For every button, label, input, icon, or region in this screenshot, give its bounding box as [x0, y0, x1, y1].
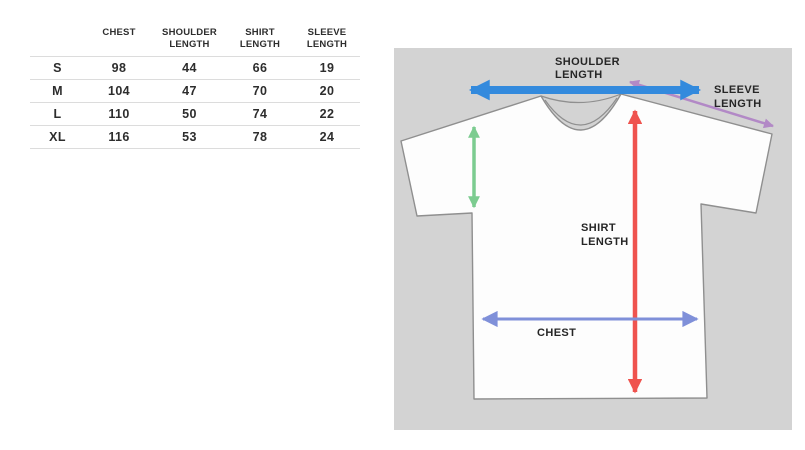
cell-sleeve-length: 22: [294, 103, 360, 126]
header-size: [30, 17, 85, 57]
size-row-s: S 98 44 66 19: [30, 57, 360, 80]
cell-sleeve-length: 20: [294, 80, 360, 103]
size-row-m: M 104 47 70 20: [30, 80, 360, 103]
size-row-l: L 110 50 74 22: [30, 103, 360, 126]
header-shirt-length: SHIRT LENGTH: [226, 17, 294, 57]
cell-chest: 110: [85, 103, 153, 126]
cell-shoulder-length: 50: [153, 103, 226, 126]
cell-size: XL: [30, 126, 85, 149]
measurement-diagram: SHOULDER LENGTH SLEEVE LENGTH SHIRT LENG…: [394, 48, 792, 430]
cell-chest: 116: [85, 126, 153, 149]
cell-size: M: [30, 80, 85, 103]
cell-shirt-length: 78: [226, 126, 294, 149]
header-chest: CHEST: [85, 17, 153, 57]
cell-shoulder-length: 53: [153, 126, 226, 149]
size-chart-header-row: CHEST SHOULDER LENGTH SHIRT LENGTH SLEEV…: [30, 17, 360, 57]
cell-shoulder-length: 44: [153, 57, 226, 80]
cell-sleeve-length: 19: [294, 57, 360, 80]
cell-sleeve-length: 24: [294, 126, 360, 149]
size-chart-table: CHEST SHOULDER LENGTH SHIRT LENGTH SLEEV…: [30, 17, 360, 149]
cell-shirt-length: 70: [226, 80, 294, 103]
cell-shirt-length: 74: [226, 103, 294, 126]
cell-chest: 104: [85, 80, 153, 103]
cell-size: S: [30, 57, 85, 80]
cell-shirt-length: 66: [226, 57, 294, 80]
cell-size: L: [30, 103, 85, 126]
chest-label: CHEST: [537, 327, 576, 339]
header-sleeve-length: SLEEVE LENGTH: [294, 17, 360, 57]
cell-chest: 98: [85, 57, 153, 80]
size-row-xl: XL 116 53 78 24: [30, 126, 360, 149]
header-shoulder-length: SHOULDER LENGTH: [153, 17, 226, 57]
cell-shoulder-length: 47: [153, 80, 226, 103]
